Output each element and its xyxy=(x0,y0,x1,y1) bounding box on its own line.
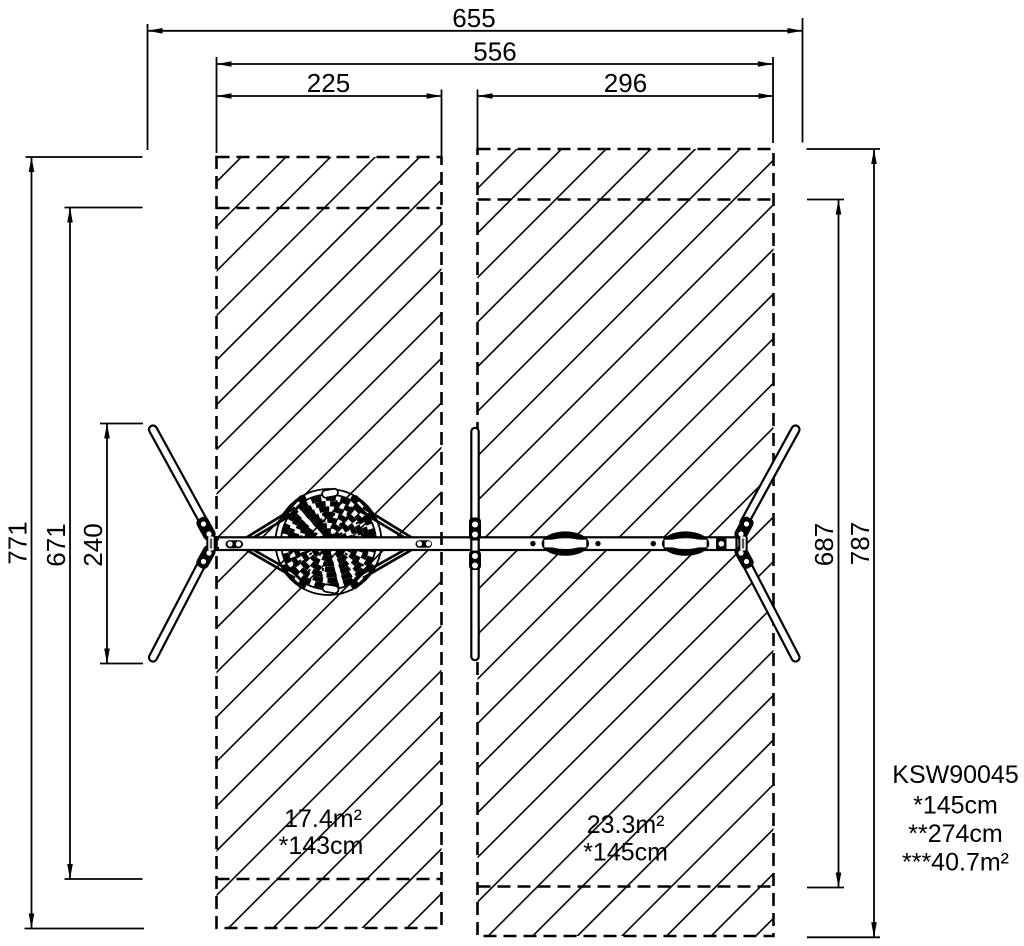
svg-text:*143cm: *143cm xyxy=(279,832,364,860)
svg-text:787: 787 xyxy=(845,522,875,565)
svg-text:***40.7m²: ***40.7m² xyxy=(902,849,1009,877)
svg-text:296: 296 xyxy=(604,68,647,98)
svg-text:771: 771 xyxy=(3,521,33,564)
svg-text:225: 225 xyxy=(307,68,350,98)
svg-text:17.4m²: 17.4m² xyxy=(284,805,362,833)
svg-text:687: 687 xyxy=(809,523,839,566)
svg-text:655: 655 xyxy=(452,3,495,33)
svg-text:240: 240 xyxy=(78,523,108,566)
svg-text:556: 556 xyxy=(473,37,516,67)
svg-text:**274cm: **274cm xyxy=(908,820,1003,848)
svg-text:*145cm: *145cm xyxy=(913,792,998,820)
svg-text:KSW90045: KSW90045 xyxy=(892,761,1018,789)
svg-text:23.3m²: 23.3m² xyxy=(587,811,665,839)
svg-text:*145cm: *145cm xyxy=(583,838,668,866)
svg-text:671: 671 xyxy=(41,523,71,566)
